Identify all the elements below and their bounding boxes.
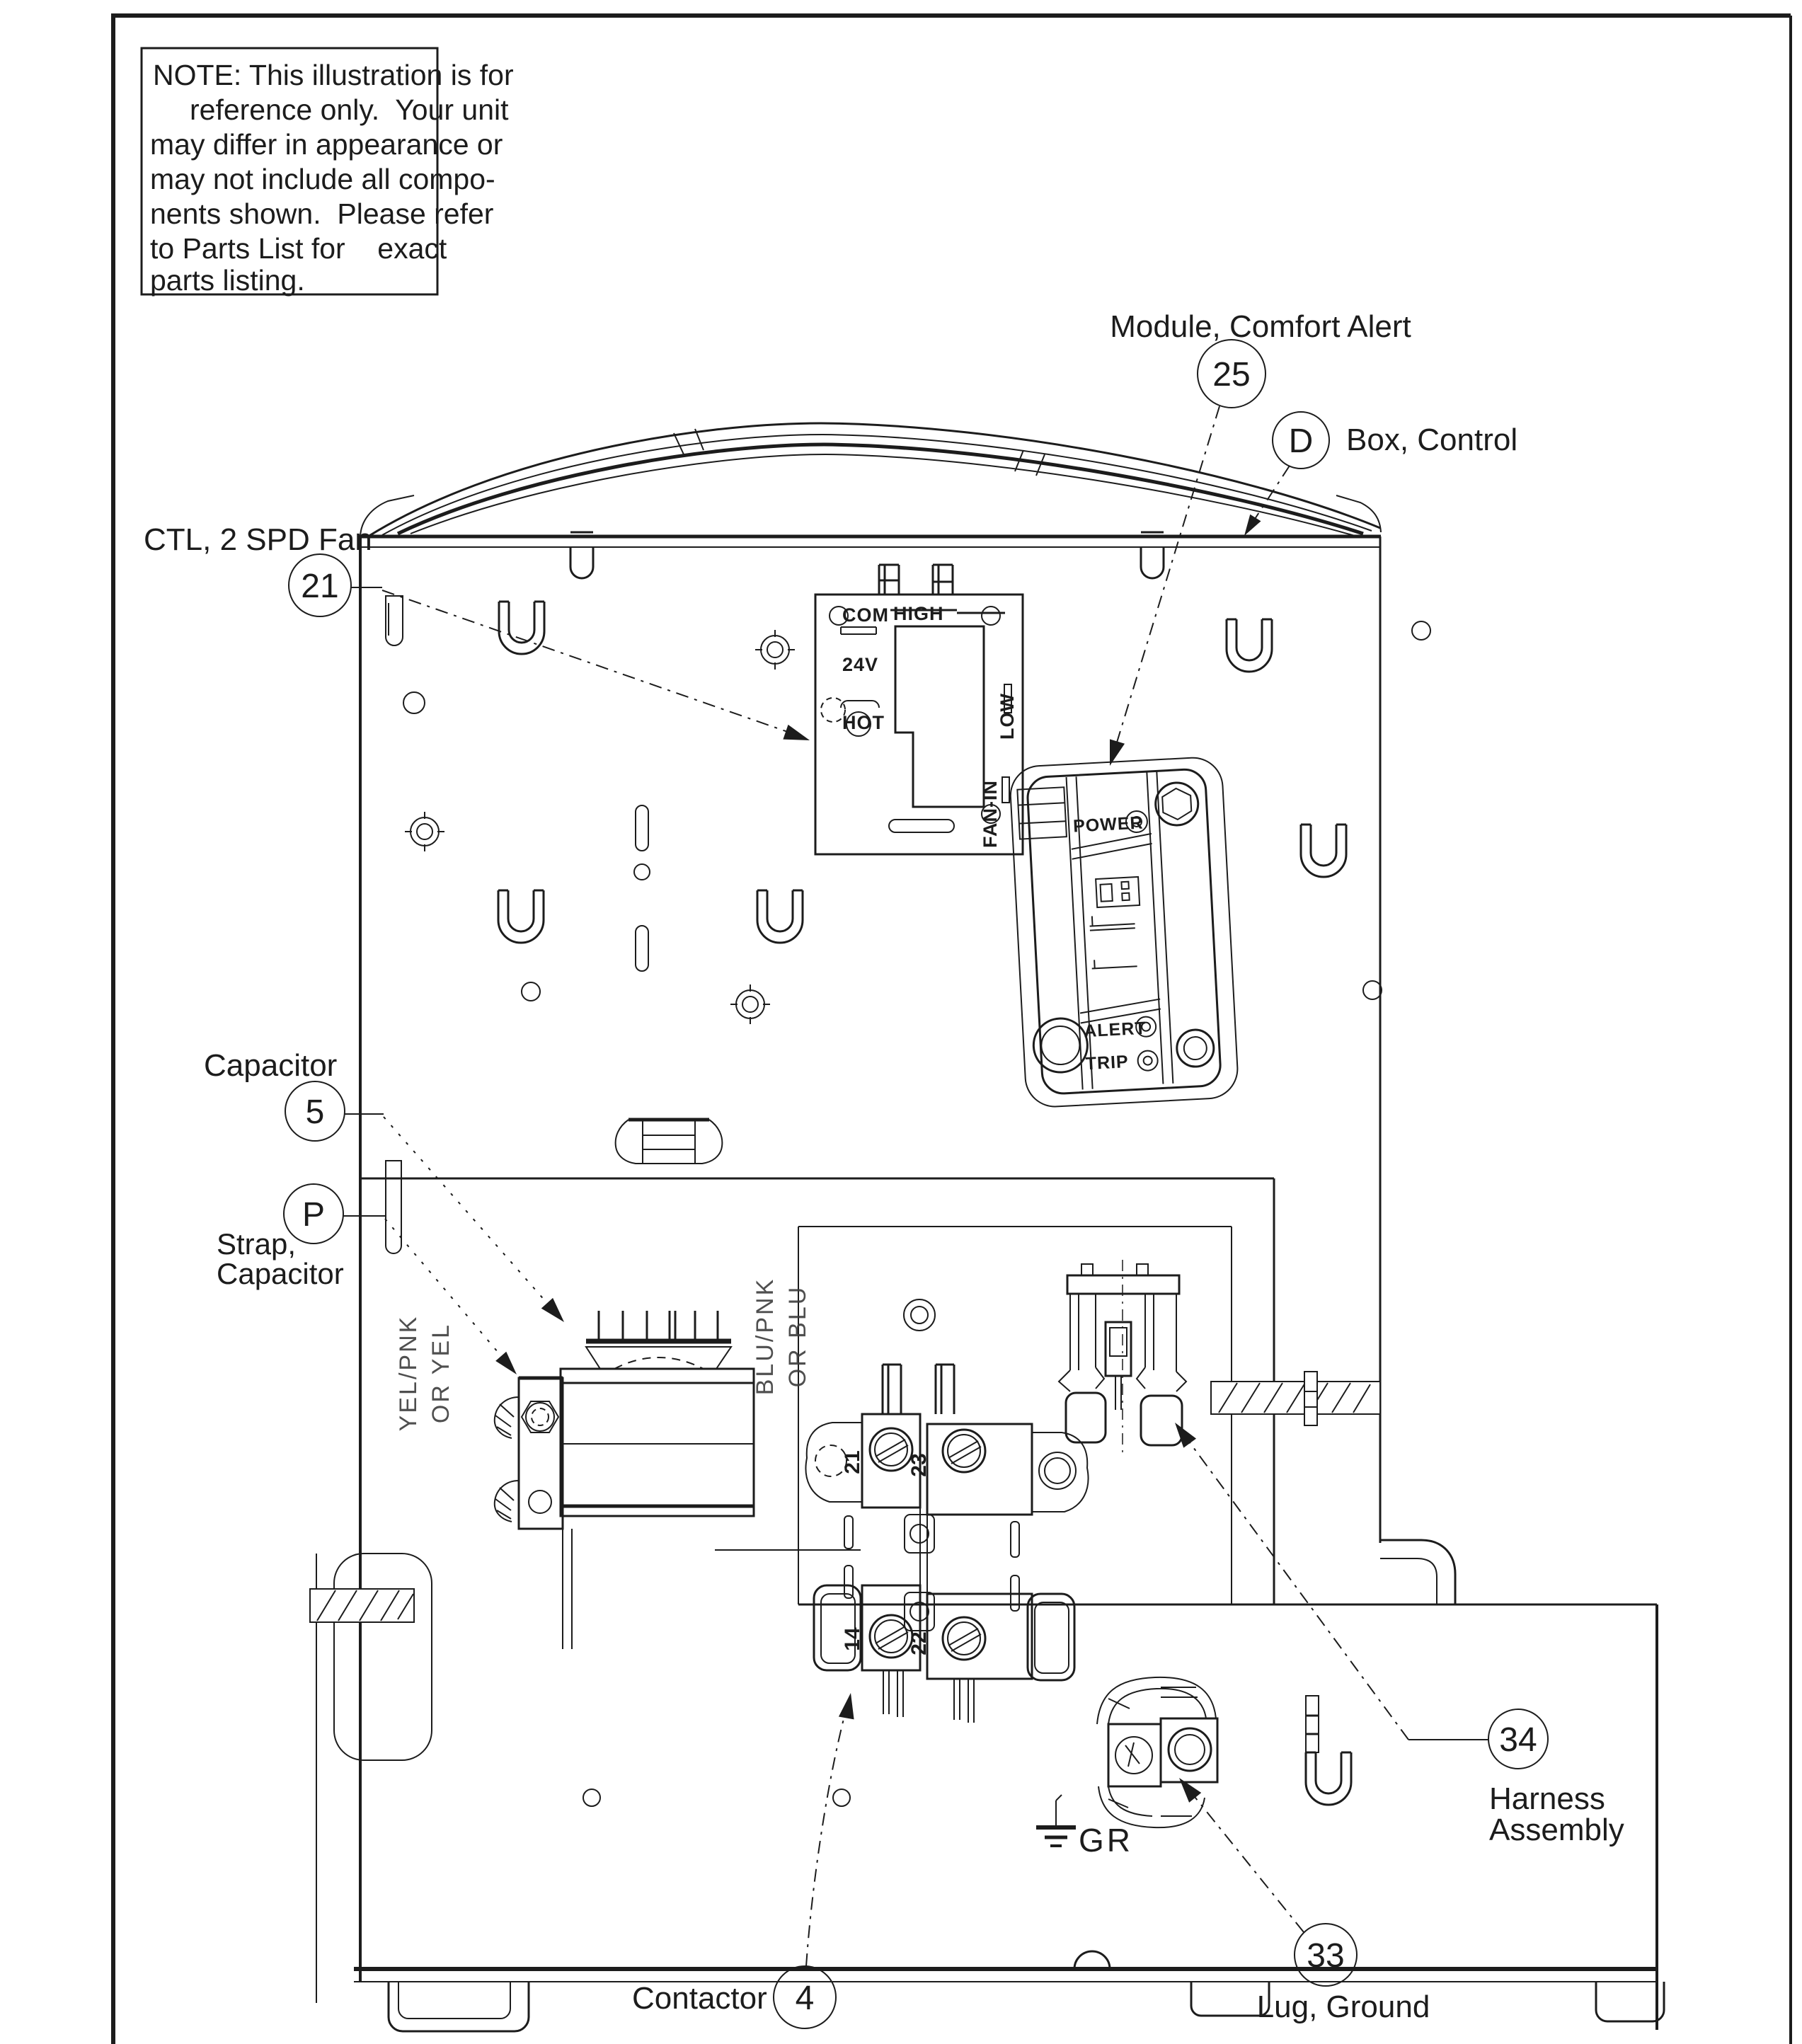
note-box: NOTE: This illustration is for reference… xyxy=(142,48,514,297)
note-line-7: parts listing. xyxy=(150,264,305,297)
callout-control-box-label: Box, Control xyxy=(1346,423,1517,457)
callout-ground-lug: 33 Lug, Ground xyxy=(1173,1773,1430,2024)
wall-section-right xyxy=(1211,1372,1380,1425)
callout-comfort-alert: Module, Comfort Alert 25 xyxy=(1102,309,1411,768)
wire-label-or-yel: OR YEL xyxy=(427,1323,454,1423)
page-border xyxy=(113,16,1791,2044)
parts-diagram: NOTE: This illustration is for reference… xyxy=(0,0,1802,2044)
callout-contactor: Contactor 4 xyxy=(632,1692,859,2028)
hook-slot xyxy=(386,596,403,645)
wire-color-labels: YEL/PNK OR YEL BLU/PNK OR BLU xyxy=(395,1277,811,1432)
callout-capacitor-strap: P Strap, Capacitor xyxy=(217,1184,522,1379)
callout-contactor-label: Contactor xyxy=(632,1981,767,2016)
callout-contactor-number: 4 xyxy=(796,1980,815,2017)
note-line-6: to Parts List for exact xyxy=(150,232,447,265)
callout-ground-lug-number: 33 xyxy=(1307,1937,1344,1975)
callout-capacitor-strap-label-2: Capacitor xyxy=(217,1257,344,1290)
pcb-label-fan-in: FAN-IN xyxy=(980,780,1001,848)
callout-control-box-letter: D xyxy=(1289,423,1314,460)
ground-label: GR xyxy=(1079,1822,1133,1859)
ground-lug xyxy=(1097,1677,1319,1827)
callout-comfort-alert-label: Module, Comfort Alert xyxy=(1110,309,1411,344)
capacitor-strap xyxy=(495,1378,563,1529)
callout-capacitor-label: Capacitor xyxy=(204,1048,337,1083)
pcb-label-com: COM xyxy=(842,604,889,626)
note-line-5: nents shown. Please refer xyxy=(150,197,493,230)
inner-panel-lines xyxy=(360,1178,1657,1649)
callout-harness-label-1: Harness xyxy=(1489,1781,1605,1816)
ground-symbol: GR xyxy=(1036,1795,1133,1859)
terminal-label-23: 23 xyxy=(907,1453,931,1476)
pcb-label-low: LOW xyxy=(997,693,1018,740)
pcb-label-high: HIGH xyxy=(893,603,944,624)
wire-label-blu-pnk: BLU/PNK xyxy=(752,1277,779,1396)
callout-comfort-alert-number: 25 xyxy=(1212,356,1250,394)
note-line-1: NOTE: This illustration is for xyxy=(153,59,514,91)
callout-harness: 34 Harness Assembly xyxy=(1169,1418,1624,1847)
pcb-label-hot: HOT xyxy=(842,712,885,733)
contactor: 21 23 14 22 xyxy=(805,1365,1088,1723)
comfort-alert-module: POWER ALERT TRIP xyxy=(1009,757,1239,1108)
callout-harness-label-2: Assembly xyxy=(1489,1813,1624,1847)
wire-label-or-blu: OR BLU xyxy=(784,1285,811,1388)
arrowhead xyxy=(1173,1773,1201,1803)
note-line-3: may differ in appearance or xyxy=(150,128,503,161)
arrowhead xyxy=(839,1692,859,1719)
callout-fan-control: CTL, 2 SPD Fan 21 xyxy=(144,522,813,747)
callout-fan-control-label: CTL, 2 SPD Fan xyxy=(144,522,372,557)
callout-fan-control-number: 21 xyxy=(301,568,338,605)
hook-slot-lower xyxy=(386,1161,401,1253)
capacitor xyxy=(561,1311,754,1516)
callout-harness-number: 34 xyxy=(1499,1721,1537,1759)
arrowhead xyxy=(1102,739,1125,768)
horseshoe-cutouts xyxy=(498,602,1351,1805)
fan-control-board: COM 24V HOT HIGH LOW FAN-IN xyxy=(815,565,1023,854)
wall-clamp xyxy=(1304,1372,1317,1425)
wire-clip xyxy=(616,1120,723,1164)
parts-diagram-page: NOTE: This illustration is for reference… xyxy=(0,0,1802,2044)
harness-connector xyxy=(1059,1260,1186,1452)
callout-capacitor-strap-label-1: Strap, xyxy=(217,1227,296,1261)
arrowhead xyxy=(541,1298,570,1327)
arrowhead xyxy=(495,1352,522,1379)
module-label-trip: TRIP xyxy=(1085,1052,1129,1074)
callout-capacitor-number: 5 xyxy=(306,1093,325,1131)
callout-ground-lug-label: Lug, Ground xyxy=(1257,1990,1430,2024)
arrowhead xyxy=(783,725,812,748)
wall-section-left xyxy=(310,1589,414,1622)
note-line-4: may not include all compo- xyxy=(150,163,495,195)
callout-capacitor-strap-letter: P xyxy=(302,1196,325,1234)
note-line-2: reference only. Your unit xyxy=(190,93,509,126)
pcb-label-24v: 24V xyxy=(842,654,878,675)
wire-label-yel-pnk: YEL/PNK xyxy=(395,1315,422,1432)
